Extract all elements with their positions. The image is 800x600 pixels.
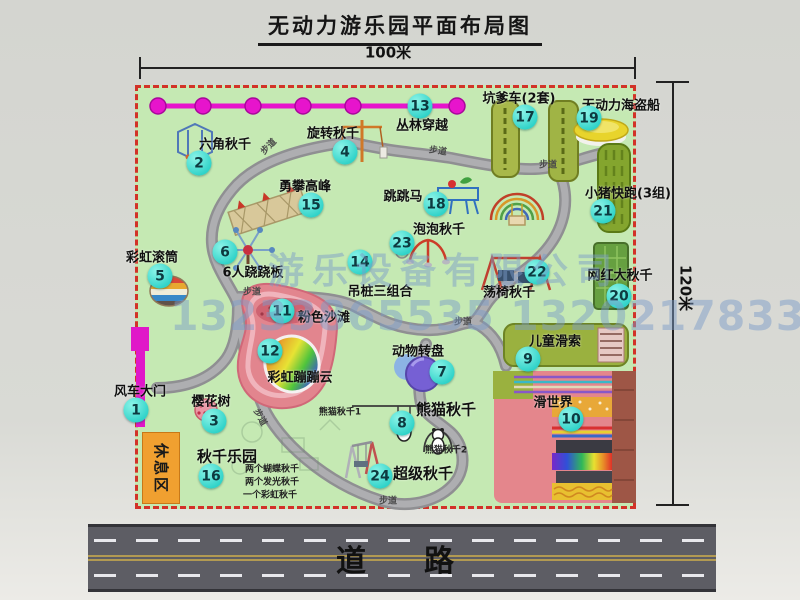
- attraction-label-8: 熊猫秋千: [416, 399, 476, 420]
- attraction-sublabel: 熊猫秋千1: [319, 405, 361, 418]
- attraction-label-3: 樱花树: [191, 391, 230, 410]
- path-label: 步道: [257, 135, 279, 157]
- attraction-badge-1: 1: [124, 398, 149, 423]
- attraction-badge-6: 6: [213, 240, 238, 265]
- attraction-badge-22: 22: [525, 260, 550, 285]
- path-label: 步道: [539, 158, 557, 171]
- path-label: 步道: [379, 494, 397, 507]
- labels-layer: 风车大门1六角秋千2樱花树3旋转秋千4彩虹滚筒56人跷跷板6动物转盘7熊猫秋千8…: [0, 0, 800, 600]
- attraction-badge-14: 14: [348, 250, 373, 275]
- attraction-badge-15: 15: [299, 193, 324, 218]
- attraction-sublabel: 一个彩虹秋千: [243, 488, 297, 501]
- path-label: 步道: [251, 406, 271, 428]
- attraction-label-17: 坑爹车(2套): [483, 88, 556, 107]
- attraction-label-12: 彩虹蹦蹦云: [267, 367, 332, 386]
- attraction-label-14: 吊桩三组合: [347, 281, 412, 300]
- attraction-badge-7: 7: [430, 360, 455, 385]
- attraction-badge-19: 19: [577, 106, 602, 131]
- screenshot-stage: 无动力游乐园平面布局图 100米 120米: [0, 0, 800, 600]
- attraction-label-24: 超级秋千: [393, 463, 453, 484]
- attraction-badge-24: 24: [368, 464, 393, 489]
- attraction-badge-8: 8: [390, 411, 415, 436]
- path-label: 步道: [454, 315, 472, 328]
- attraction-badge-10: 10: [559, 407, 584, 432]
- path-label: 步道: [428, 142, 448, 157]
- attraction-label-7: 动物转盘: [392, 341, 444, 360]
- attraction-label-15: 勇攀高峰: [279, 176, 331, 195]
- attraction-badge-20: 20: [607, 284, 632, 309]
- attraction-badge-3: 3: [202, 409, 227, 434]
- attraction-label-22: 荡椅秋千: [483, 282, 535, 301]
- attraction-label-20: 网红大秋千: [587, 265, 652, 284]
- attraction-badge-23: 23: [390, 231, 415, 256]
- attraction-badge-21: 21: [591, 199, 616, 224]
- attraction-label-4: 旋转秋千: [307, 123, 359, 142]
- attraction-badge-9: 9: [516, 347, 541, 372]
- attraction-label-6: 6人跷跷板: [222, 262, 283, 281]
- attraction-sublabel: 两个蝴蝶秋千: [245, 462, 299, 475]
- attraction-badge-16: 16: [199, 464, 224, 489]
- attraction-sublabel: 两个发光秋千: [245, 475, 299, 488]
- attraction-label-11: 粉色沙滩: [298, 307, 350, 326]
- attraction-label-1: 风车大门: [114, 381, 166, 400]
- attraction-badge-5: 5: [148, 264, 173, 289]
- attraction-badge-17: 17: [513, 105, 538, 130]
- path-label: 步道: [243, 285, 261, 298]
- attraction-label-2: 六角秋千: [199, 134, 251, 153]
- attraction-badge-12: 12: [258, 339, 283, 364]
- attraction-badge-11: 11: [270, 299, 295, 324]
- attraction-label-5: 彩虹滚筒: [126, 247, 178, 266]
- attraction-badge-13: 13: [408, 94, 433, 119]
- attraction-label-18: 跳跳马: [383, 186, 422, 205]
- attraction-badge-2: 2: [187, 151, 212, 176]
- attraction-sublabel: 熊猫秋千2: [425, 443, 467, 456]
- attraction-badge-18: 18: [424, 192, 449, 217]
- attraction-label-9: 儿童滑索: [529, 331, 581, 350]
- attraction-label-23: 泡泡秋千: [413, 219, 465, 238]
- attraction-badge-4: 4: [333, 140, 358, 165]
